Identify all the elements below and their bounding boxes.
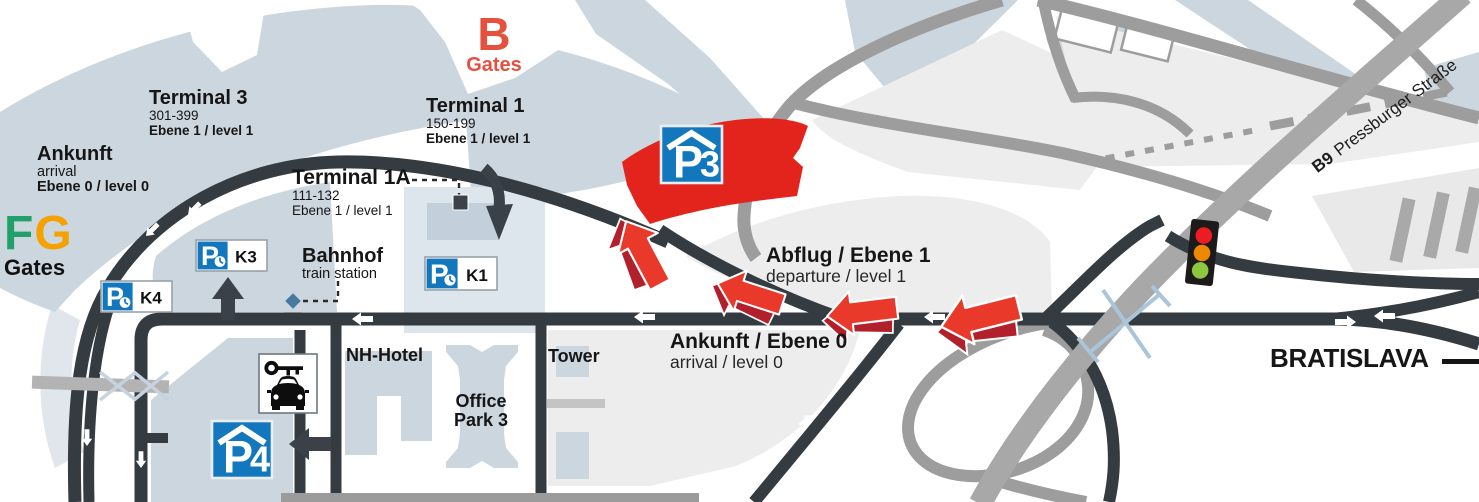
parking-p-glyph: P [106, 282, 124, 312]
parking-zone-label: K4 [140, 289, 162, 308]
parking-garage-sign-p3: P 3 [661, 126, 722, 188]
south-road [281, 493, 699, 502]
parking-zone-label: K3 [235, 248, 257, 267]
nh-hotel-building [345, 351, 432, 455]
airport-access-map: P K3 P K4 P K1 P 3 P 4 [0, 0, 1479, 502]
parking-sign-k4: P K4 [101, 281, 172, 312]
garage-number: 4 [250, 439, 270, 480]
parking-garage-sign-p4: P 4 [212, 421, 272, 483]
map-canvas: P K3 P K4 P K1 P 3 P 4 [0, 0, 1479, 502]
garage-p-glyph: P [223, 432, 253, 483]
parking-zone-label: K1 [466, 266, 488, 285]
bratislava-arrow-dash [1442, 359, 1479, 364]
garage-p-glyph: P [673, 137, 703, 188]
office-park-building [446, 345, 518, 468]
parking-sign-k3: P K3 [196, 240, 267, 271]
garage-number: 3 [700, 144, 720, 185]
parking-p-glyph: P [201, 241, 219, 271]
car-rental-icon [259, 354, 317, 413]
parking-sign-k1: P K1 [425, 257, 497, 290]
terminal1a-marker [453, 195, 468, 210]
parking-p-glyph: P [430, 259, 449, 290]
